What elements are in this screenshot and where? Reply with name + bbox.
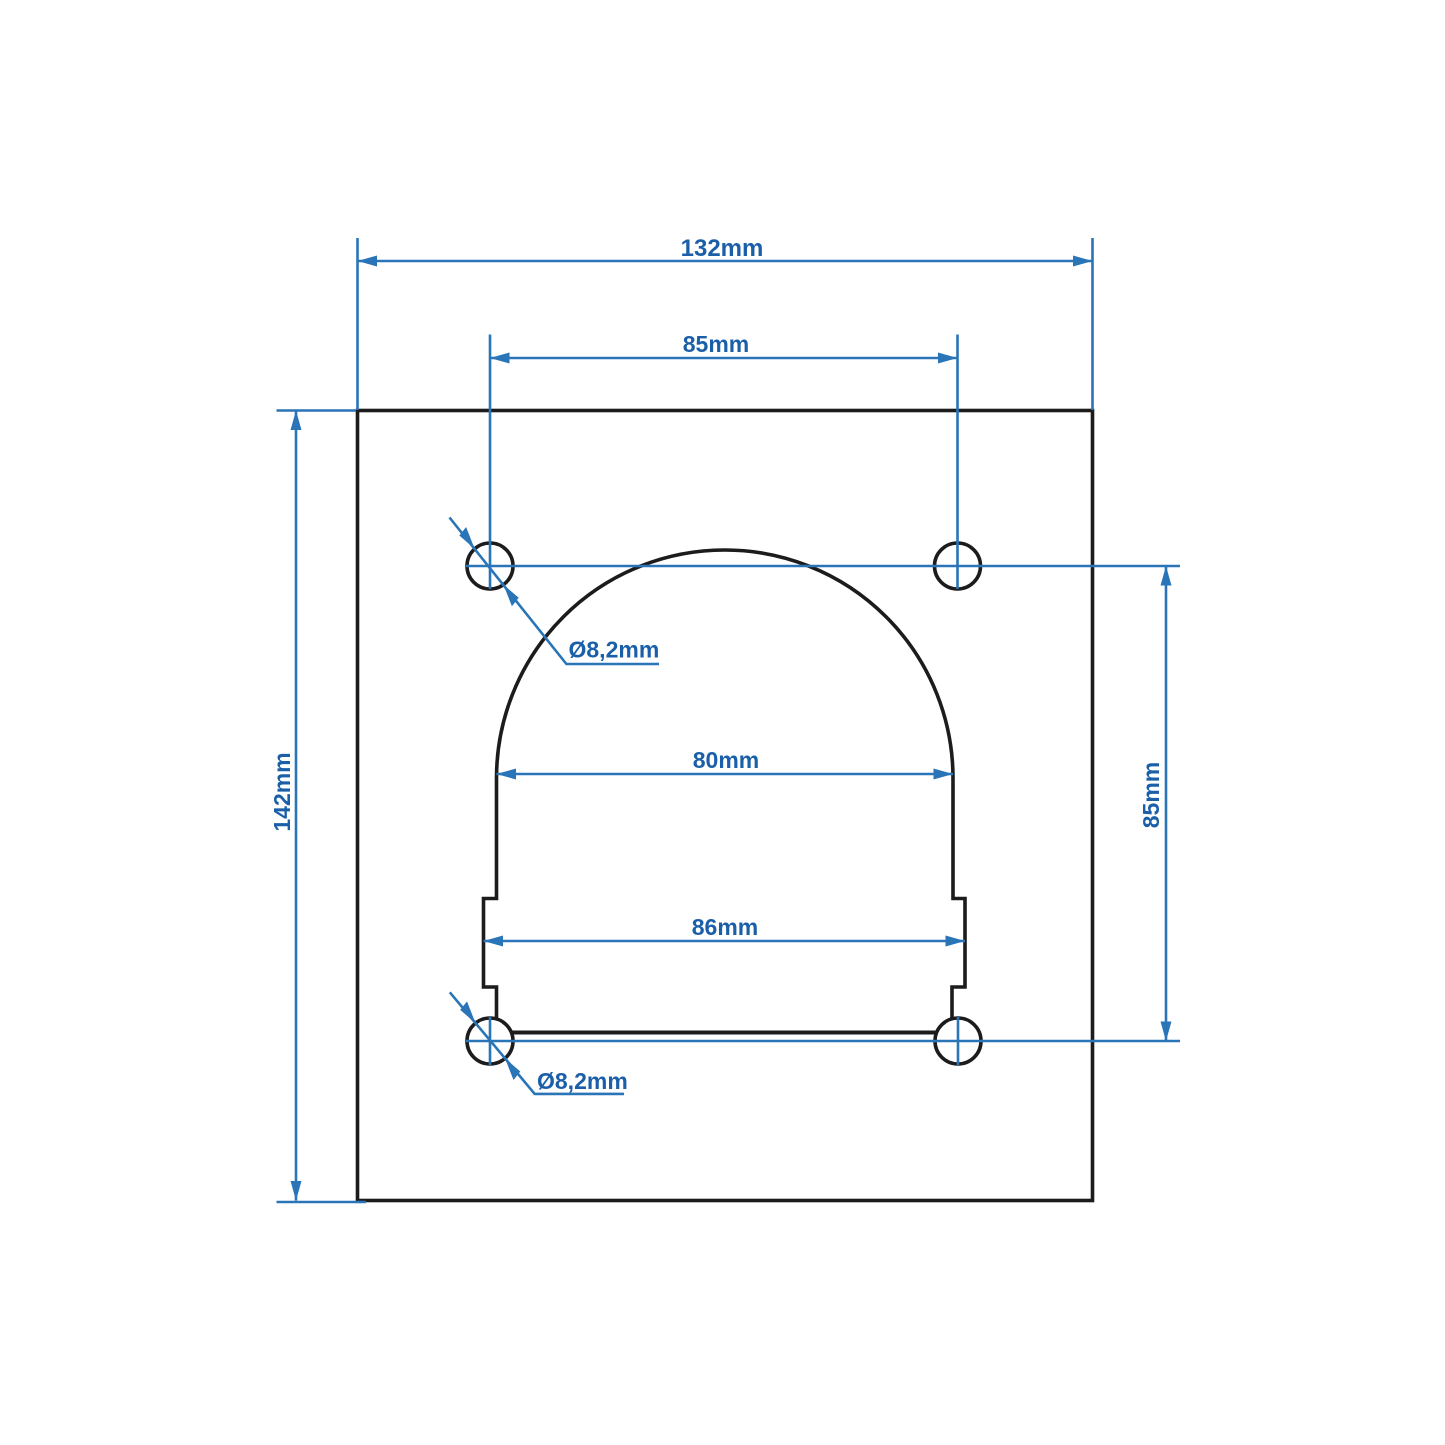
svg-text:85mm: 85mm <box>683 331 749 357</box>
svg-text:85mm: 85mm <box>1138 762 1164 828</box>
svg-text:Ø8,2mm: Ø8,2mm <box>537 1068 628 1094</box>
svg-text:80mm: 80mm <box>693 747 759 773</box>
svg-text:142mm: 142mm <box>269 752 295 831</box>
svg-text:132mm: 132mm <box>681 235 764 262</box>
svg-text:Ø8,2mm: Ø8,2mm <box>569 637 660 663</box>
svg-text:86mm: 86mm <box>692 914 758 940</box>
